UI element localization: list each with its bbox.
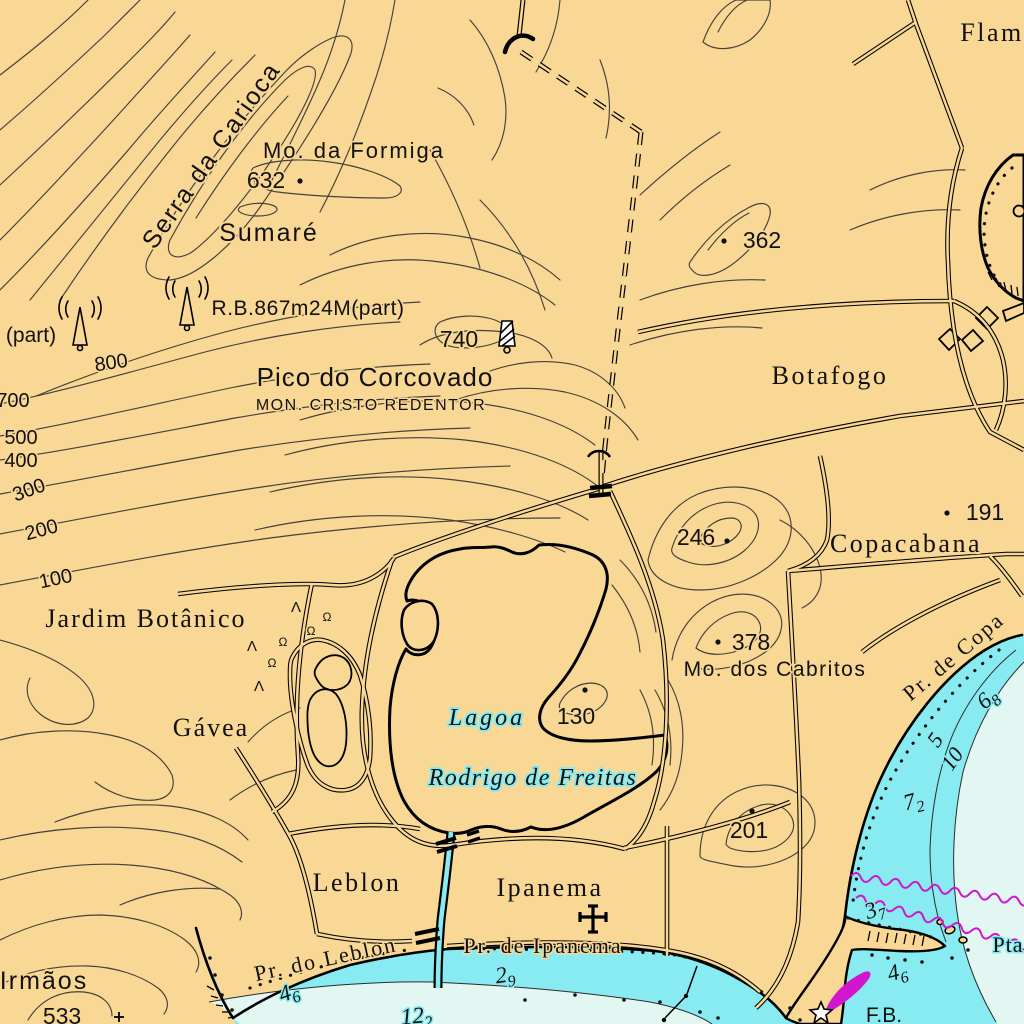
circle-shape: [920, 960, 924, 964]
vegetation-symbol: Ω: [323, 610, 332, 624]
vegetation-symbol: Λ: [291, 599, 301, 616]
spot-height-label: 130: [557, 703, 595, 729]
spot-height-dot: [715, 639, 720, 644]
spot-height-label: 740: [440, 326, 478, 352]
label-pta: Pta: [992, 932, 1023, 957]
circle-shape: [622, 998, 626, 1002]
circle-shape: [798, 1018, 802, 1022]
spot-height-label: 362: [743, 227, 781, 253]
spot-height-label: 191: [966, 499, 1004, 525]
label-rodrigo-de-freitas: Rodrigo de Freitas: [428, 765, 638, 791]
label-mo-dos-cabritos: Mo. dos Cabritos: [684, 658, 867, 681]
circle-shape: [950, 956, 954, 960]
nautical-chart: Serra da CariocaMo. da FormigaSumaré(par…: [0, 0, 1024, 1024]
circle-shape: [208, 956, 212, 960]
spot-height-dot: [721, 238, 726, 243]
circle-shape: [716, 1016, 720, 1020]
circle-shape: [220, 993, 224, 997]
spot-height-label: 378: [732, 629, 770, 655]
circle-shape: [698, 1010, 702, 1014]
vegetation-symbol: Λ: [247, 638, 257, 655]
spot-height-dot: [944, 510, 949, 515]
label-leblon: Leblon: [313, 868, 402, 897]
circle-shape: [886, 956, 890, 960]
label-pr-de-ipanema: Pr. de Ipanema: [463, 933, 622, 958]
circle-shape: [966, 948, 970, 952]
label-gavea: Gávea: [173, 713, 249, 742]
ellipse-shape: [959, 937, 967, 943]
lagoon-islet: [402, 601, 438, 650]
circle-shape: [662, 1018, 666, 1022]
tspan-shape: 2: [424, 1014, 433, 1024]
label-irmaos: Irmãos: [0, 967, 88, 995]
bay-islet: [1014, 206, 1024, 217]
circle-shape: [230, 1008, 234, 1012]
label-part: (part): [6, 324, 56, 347]
label-lagoa: Lagoa: [448, 705, 525, 731]
chart-canvas: Serra da CariocaMo. da FormigaSumaré(par…: [0, 0, 1024, 1024]
label-radio-station: R.B.867m24M(part): [212, 297, 405, 320]
contour-label-500: 500: [4, 427, 37, 449]
path-shape: [590, 486, 612, 488]
spot-height-label: 201: [730, 817, 768, 843]
label-pico-do-corcovado: Pico do Corcovado: [257, 362, 494, 392]
spot-height-dot: [582, 687, 587, 692]
vegetation-symbol: Ω: [268, 656, 277, 670]
contour-label-400: 400: [4, 450, 37, 472]
circle-shape: [573, 993, 577, 997]
label-flamengo: Flam: [960, 18, 1023, 47]
circle-shape: [788, 1006, 792, 1010]
circle-shape: [213, 973, 217, 977]
path-shape: [589, 494, 611, 496]
circle-shape: [870, 953, 874, 957]
spot-height-dot: [749, 808, 754, 813]
contour-label-700: 700: [0, 390, 30, 412]
label-jardim-botanico: Jardim Botânico: [45, 604, 246, 633]
label-botafogo: Botafogo: [772, 361, 889, 390]
label-light-fb: F.B.: [866, 1004, 902, 1024]
label-mon-cristo-redentor: MON. CRISTO REDENTOR: [256, 397, 486, 414]
label-sumare: Sumaré: [219, 219, 319, 247]
circle-shape: [903, 958, 907, 962]
spot-height-dot: [297, 178, 302, 183]
spot-height-label: 632: [247, 167, 285, 193]
label-ipanema: Ipanema: [496, 873, 603, 902]
label-copacabana: Copacabana: [830, 529, 982, 558]
label-mo-da-formiga: Mo. da Formiga: [263, 138, 445, 163]
vegetation-symbol: Ω: [279, 635, 288, 649]
spot-height-label: 246: [677, 524, 715, 550]
vegetation-symbol: Ω: [307, 624, 316, 638]
circle-shape: [523, 998, 527, 1002]
spot-height-dot: [724, 538, 729, 543]
spot-height-label: 533: [43, 1003, 81, 1024]
circle-shape: [658, 1000, 662, 1004]
vegetation-symbol: Λ: [254, 678, 264, 695]
contour-label-800: 800: [93, 350, 129, 376]
